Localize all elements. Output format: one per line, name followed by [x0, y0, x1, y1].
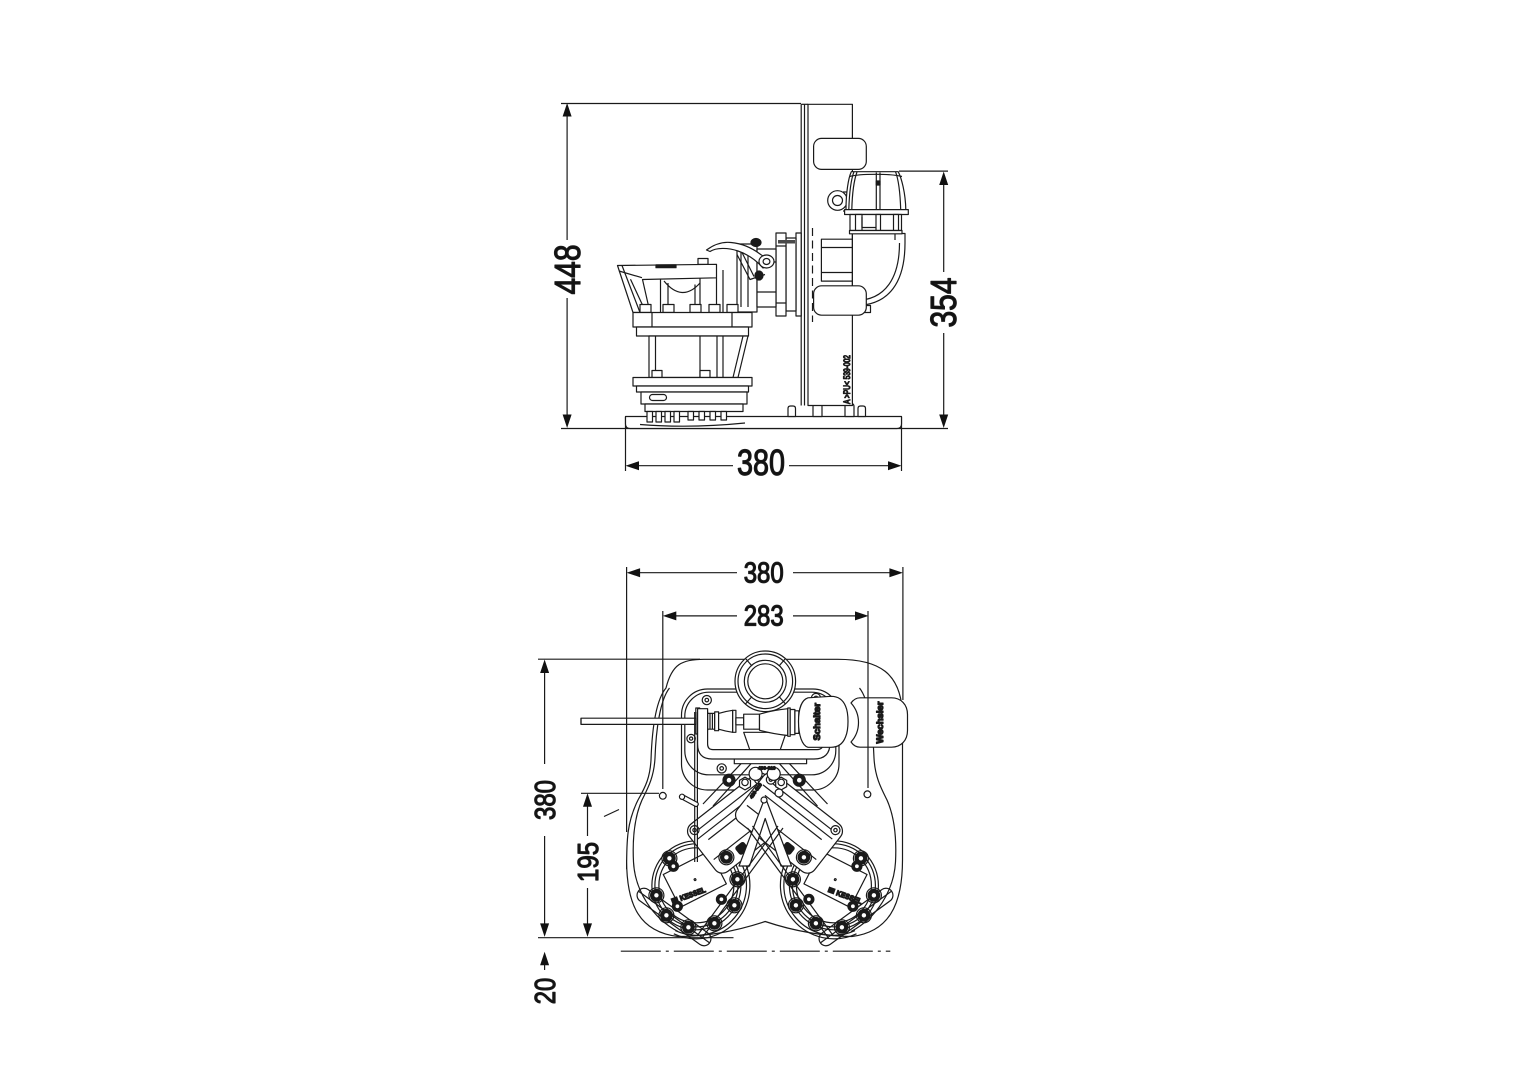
- svg-text:195: 195: [573, 842, 605, 882]
- svg-text:380: 380: [737, 442, 785, 483]
- svg-text:20: 20: [530, 978, 562, 1005]
- svg-text:430-019: 430-019: [758, 766, 776, 772]
- svg-text:Schalter: Schalter: [812, 703, 823, 741]
- svg-text:283: 283: [744, 601, 784, 633]
- svg-text:380: 380: [744, 557, 784, 589]
- svg-text:448: 448: [547, 245, 588, 295]
- svg-text:A >PU< 539-002: A >PU< 539-002: [842, 355, 852, 404]
- svg-text:Wechsler: Wechsler: [875, 701, 886, 743]
- svg-text:380: 380: [530, 780, 562, 820]
- svg-text:354: 354: [923, 278, 964, 328]
